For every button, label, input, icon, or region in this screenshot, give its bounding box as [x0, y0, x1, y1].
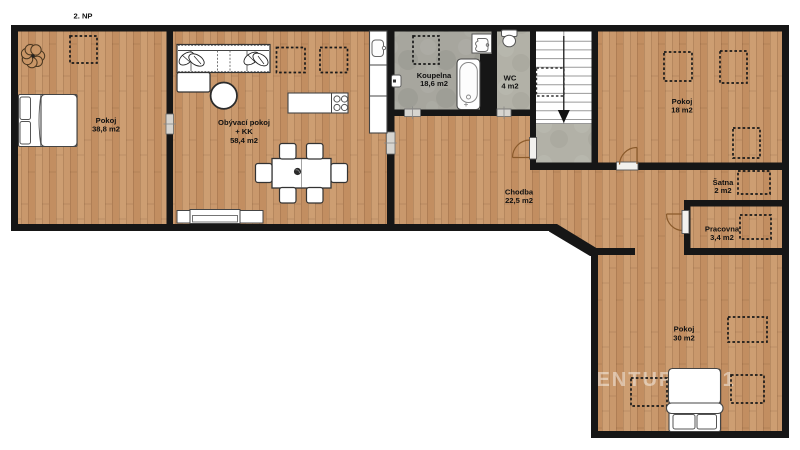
svg-text:4 m2: 4 m2 [501, 82, 518, 91]
svg-text:Pokoj: Pokoj [674, 325, 695, 334]
svg-text:22,5 m2: 22,5 m2 [505, 196, 533, 205]
svg-text:Obývací pokoj: Obývací pokoj [218, 118, 270, 127]
svg-text:58,4 m2: 58,4 m2 [230, 136, 258, 145]
svg-text:18,6 m2: 18,6 m2 [420, 79, 448, 88]
svg-text:3,4 m2: 3,4 m2 [710, 233, 734, 242]
svg-text:2 m2: 2 m2 [714, 186, 731, 195]
svg-text:2. NP: 2. NP [74, 12, 93, 21]
svg-text:+ KK: + KK [235, 127, 253, 136]
svg-text:38,8 m2: 38,8 m2 [92, 124, 120, 133]
svg-text:30 m2: 30 m2 [673, 333, 695, 342]
svg-text:18 m2: 18 m2 [671, 105, 693, 114]
